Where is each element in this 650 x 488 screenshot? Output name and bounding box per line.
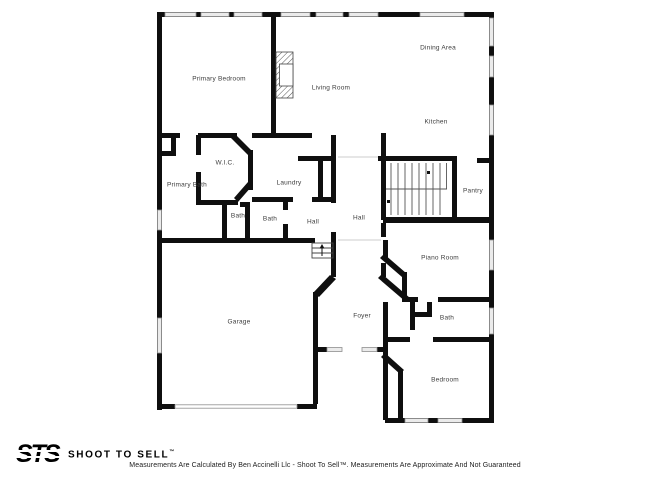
fireplace-icon	[276, 52, 293, 98]
room-label-primary-bath: Primary Bath	[167, 182, 207, 189]
footer: STS SHOOT TO SELL™ Measurements Are Calc…	[0, 440, 650, 488]
room-label-primary-bedroom: Primary Bedroom	[192, 76, 246, 83]
brand-text: SHOOT TO SELL™	[68, 449, 174, 460]
room-label-laundry: Laundry	[277, 180, 302, 187]
room-label-wic: W.I.C.	[216, 160, 235, 167]
room-label-hall-1: Hall	[307, 219, 319, 226]
threshold-lines	[338, 157, 381, 240]
brand-label: SHOOT TO SELL	[68, 449, 169, 460]
room-label-bedroom: Bedroom	[431, 377, 459, 384]
room-label-dining-area: Dining Area	[420, 45, 456, 52]
room-label-pantry: Pantry	[463, 188, 483, 195]
garage-door	[175, 405, 297, 408]
disclaimer-text: Measurements Are Calculated By Ben Accin…	[0, 462, 650, 469]
floor-plan-page: Primary Bedroom Living Room Dining Area …	[0, 0, 650, 488]
room-label-garage: Garage	[228, 319, 251, 326]
room-label-piano-room: Piano Room	[421, 255, 459, 262]
room-label-hall-2: Hall	[353, 215, 365, 222]
logo-stripe	[14, 456, 66, 458]
room-label-bath-1: Bath	[231, 213, 245, 220]
room-label-bath-2: Bath	[263, 216, 277, 223]
trademark-symbol: ™	[169, 449, 174, 455]
room-label-kitchen: Kitchen	[424, 119, 447, 126]
room-label-foyer: Foyer	[353, 313, 371, 320]
room-label-living-room: Living Room	[312, 85, 350, 92]
floor-plan-drawing	[0, 0, 650, 445]
garage-steps-icon	[312, 243, 333, 258]
logo-stripe	[14, 450, 66, 452]
floor-plan: Primary Bedroom Living Room Dining Area …	[0, 0, 650, 445]
staircase-icon	[386, 163, 447, 215]
room-label-bath-3: Bath	[440, 315, 454, 322]
